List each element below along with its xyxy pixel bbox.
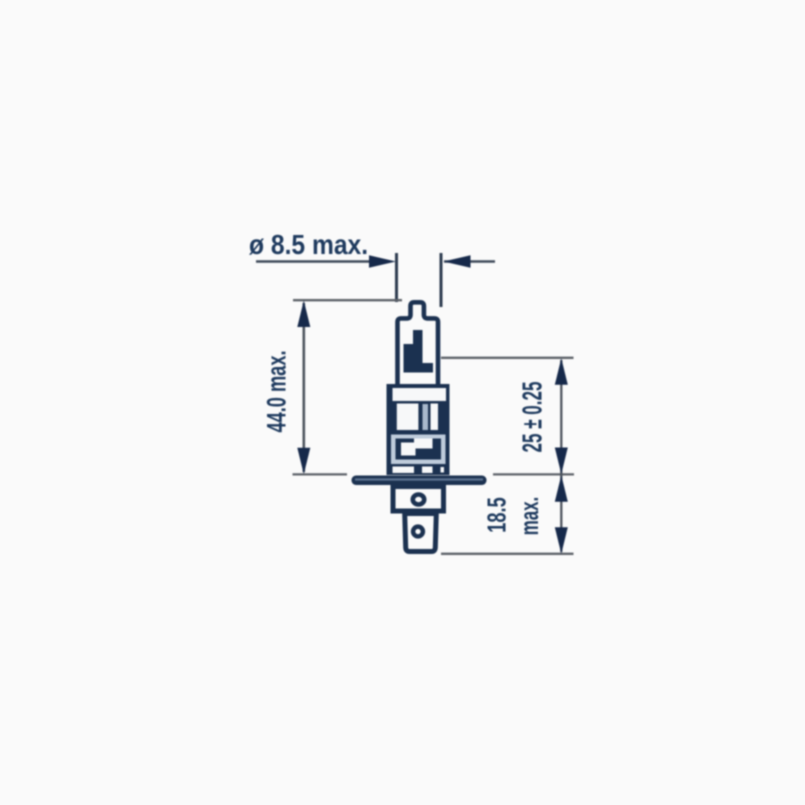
svg-text:max.: max. <box>514 497 544 535</box>
svg-text:44.0 max.: 44.0 max. <box>261 350 291 432</box>
svg-text:25 ± 0.25: 25 ± 0.25 <box>516 381 547 452</box>
svg-text:18.5: 18.5 <box>482 497 511 532</box>
svg-text:ø 8.5 max.: ø 8.5 max. <box>249 229 368 261</box>
